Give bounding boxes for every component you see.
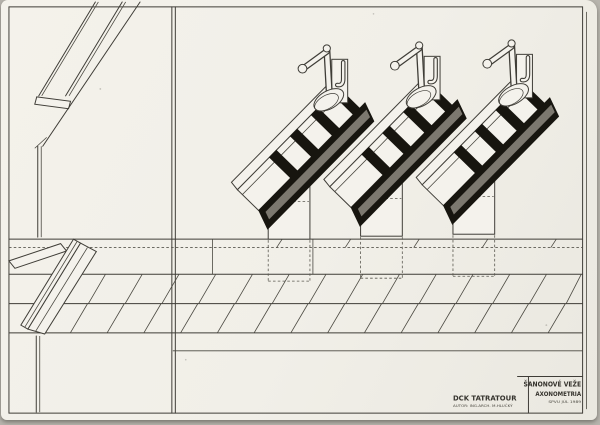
flap-panels — [9, 239, 96, 334]
drawing-title-text: ŠANONOVÉ VEŽE — [523, 379, 581, 388]
date-text: SPVU JÚL 1989 — [548, 399, 581, 404]
left-mast — [36, 146, 41, 412]
company-text: DCK TATRATOUR — [453, 395, 517, 403]
author-text: AUTOR: ING.ARCH. M.HLUČKÝ — [453, 403, 513, 408]
drawing-subtitle-text: AXONOMETRIA — [535, 390, 581, 398]
diagonal-duct — [35, 2, 140, 148]
drawing-canvas: ŠANONOVÉ VEŽE AXONOMETRIA SPVU JÚL 1989 … — [1, 0, 597, 420]
drawing-sheet: ŠANONOVÉ VEŽE AXONOMETRIA SPVU JÚL 1989 … — [1, 0, 597, 420]
counter — [9, 239, 583, 351]
title-block: ŠANONOVÉ VEŽE AXONOMETRIA SPVU JÚL 1989 … — [453, 377, 583, 414]
photo-background: ŠANONOVÉ VEŽE AXONOMETRIA SPVU JÚL 1989 … — [0, 0, 600, 425]
